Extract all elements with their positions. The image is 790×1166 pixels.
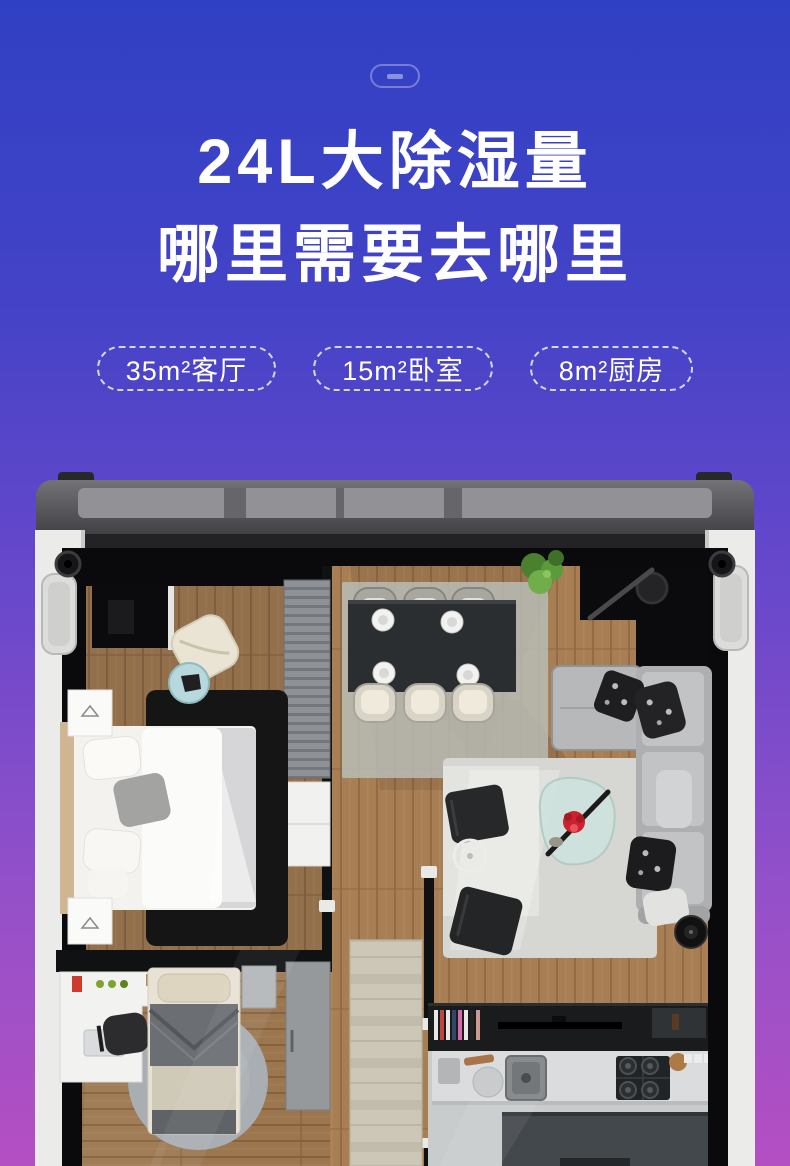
leather-pouf	[444, 783, 510, 844]
patterned-pillow	[625, 835, 678, 893]
shell-handle-right	[714, 566, 748, 650]
dining-area	[342, 550, 564, 778]
speaker-right-icon	[710, 552, 734, 576]
headline-line2: 哪里需要去哪里	[0, 209, 790, 302]
double-bed	[60, 722, 256, 914]
dash-glyph	[387, 74, 403, 79]
bottle	[672, 1014, 679, 1030]
side-table-teal	[169, 663, 209, 703]
sink	[506, 1056, 546, 1100]
pillow	[158, 974, 230, 1002]
door-trim	[421, 866, 437, 878]
room-badges: 35m²客厅 15m²卧室 8m²厨房	[0, 346, 790, 391]
badge-kitchen: 8m²厨房	[530, 346, 694, 391]
dining-table	[348, 600, 516, 692]
badge-living-room: 35m²客厅	[97, 346, 277, 391]
faucet	[521, 1073, 531, 1083]
red-can	[72, 976, 82, 992]
round-plate	[473, 1067, 503, 1097]
round-speaker	[675, 916, 707, 948]
headline-line1: 24L大除湿量	[0, 116, 790, 209]
promo-banner: 24L大除湿量 哪里需要去哪里 35m²客厅 15m²卧室 8m²厨房	[0, 0, 790, 1166]
towel-box	[438, 1058, 460, 1084]
stone-decor	[549, 837, 563, 847]
nightstand-bottom	[68, 898, 112, 944]
rounded-dash-icon	[370, 64, 420, 88]
kitchen-island	[502, 1112, 708, 1166]
hallway	[350, 940, 422, 1166]
nightstand-top	[68, 690, 112, 736]
runner-rug	[350, 940, 422, 1166]
door-trim	[319, 900, 335, 912]
shell-handle-left	[42, 574, 76, 654]
wardrobe	[284, 580, 330, 778]
red-flower	[563, 811, 585, 833]
dining-chairs-bottom	[354, 684, 494, 722]
gray-pillow	[656, 770, 692, 828]
floorplan-render	[0, 470, 790, 1166]
hero-section: 24L大除湿量 哪里需要去哪里 35m²客厅 15m²卧室 8m²厨房	[0, 0, 790, 391]
glass-coffee-table	[540, 778, 615, 864]
badge-bedroom: 15m²卧室	[313, 346, 493, 391]
gas-stove	[616, 1056, 670, 1100]
flat-tv	[498, 1022, 622, 1029]
tv-console	[428, 1003, 708, 1051]
speaker-left-icon	[56, 552, 80, 576]
kitchen-counter	[432, 1051, 708, 1105]
headline: 24L大除湿量 哪里需要去哪里	[0, 116, 790, 302]
